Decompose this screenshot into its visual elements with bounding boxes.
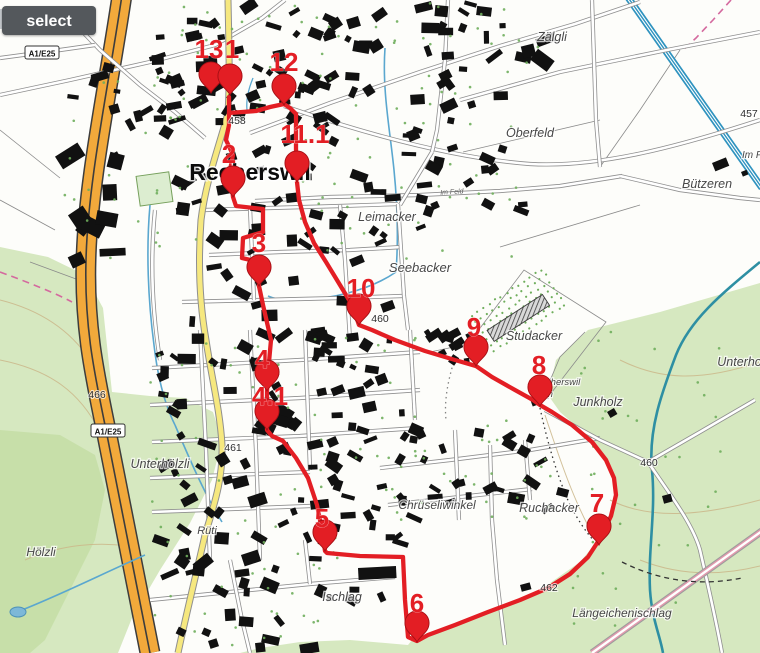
tree-dot [473,483,476,486]
field-label: Im F [742,150,760,161]
tree-dot [234,626,237,629]
tree-dot [318,567,321,570]
tree-dot [400,186,403,189]
building [332,412,343,418]
building [308,465,317,470]
tree-dot [327,156,330,159]
elevation-label: 458 [228,115,246,127]
tree-dot [604,410,607,413]
tree-dot [291,592,294,595]
building [476,6,492,17]
marker-number: 8 [532,350,546,380]
tree-dot [488,441,491,444]
tree-dot [396,20,399,23]
tree-dot [696,381,699,384]
tree-dot [719,450,722,453]
tree-dot [195,437,198,440]
tree-dot [231,644,234,647]
field-label: Junkholz [572,395,623,409]
field-label: Chrüseliwinkel [398,498,476,512]
tree-dot [363,232,366,235]
tree-dot [502,34,505,37]
building [225,608,236,621]
tree-dot [619,522,622,525]
tree-dot [413,339,416,342]
field-label: Bützeren [682,177,732,191]
tree-dot [653,348,656,351]
tree-dot [491,192,494,195]
building [99,248,125,257]
tree-dot [301,82,304,85]
tree-dot [490,472,493,475]
tree-dot [117,80,120,83]
tree-dot [454,92,457,95]
building [384,194,401,202]
tree-dot [251,572,254,575]
tree-dot [345,337,348,340]
tree-dot [156,192,159,195]
tree-dot [636,419,639,422]
tree-dot [168,71,171,74]
tree-dot [151,500,154,503]
tree-dot [424,450,427,453]
tree-dot [428,75,431,78]
tree-dot [276,612,279,615]
tree-dot [443,472,446,475]
building [192,333,204,343]
tree-dot [518,39,521,42]
tree-dot [389,382,392,385]
tree-dot [523,479,526,482]
tree-dot [486,425,489,428]
field-label: Ruchacker [519,501,580,515]
tree-dot [295,383,298,386]
tree-dot [490,42,493,45]
field-label: Leimacker [358,210,416,224]
tree-dot [614,624,617,627]
tree-dot [449,35,452,38]
tree-dot [346,206,349,209]
building [410,94,425,105]
building [177,354,195,364]
tree-dot [686,544,689,547]
tree-dot [477,192,480,195]
tree-dot [326,249,329,252]
tree-dot [69,157,72,160]
tree-dot [707,505,710,508]
tree-dot [181,364,184,367]
tree-dot [485,501,488,504]
tree-dot [469,86,472,89]
marker-number: 13 [195,34,224,64]
tree-dot [414,455,417,458]
tree-dot [429,2,432,5]
building [474,428,485,438]
tree-dot [703,394,706,397]
tree-dot [465,197,468,200]
building [220,230,238,240]
tree-dot [160,526,163,529]
tree-dot [200,99,203,102]
tree-dot [314,414,317,417]
building [441,51,454,60]
marker-number: 3 [252,228,266,258]
tree-dot [506,71,509,74]
tree-dot [590,473,593,476]
building [309,556,322,562]
tree-dot [316,16,319,19]
tree-dot [391,488,394,491]
tree-dot [602,572,605,575]
tree-dot [375,26,378,29]
tree-dot [525,517,528,520]
marker-number: 5 [315,503,329,533]
tree-dot [320,438,323,441]
tree-dot [329,77,332,80]
marker-number: 4.1 [252,381,288,411]
tree-dot [464,475,467,478]
tree-dot [678,456,681,459]
building [409,435,418,443]
tree-dot [257,17,260,20]
tree-dot [195,238,198,241]
tree-dot [593,473,596,476]
tree-dot [355,361,358,364]
building [358,566,397,580]
elevation-label: 466 [88,389,106,401]
building [243,588,250,597]
tree-dot [194,23,197,26]
tree-dot [300,21,303,24]
tree-dot [357,138,360,141]
tree-dot [615,587,618,590]
tree-dot [113,198,116,201]
tree-dot [149,381,152,384]
tree-dot [515,186,518,189]
tree-dot [525,61,528,64]
tree-dot [481,439,484,442]
building [287,234,298,246]
building [402,152,417,157]
tree-dot [259,99,262,102]
building [488,487,496,492]
tree-dot [437,139,440,142]
tree-dot [414,415,417,418]
tree-dot [229,364,232,367]
tree-dot [321,53,324,56]
tree-dot [340,242,343,245]
tree-dot [156,189,159,192]
tree-dot [144,132,147,135]
tree-dot [328,26,331,29]
field-label: Zälgli [536,30,568,44]
tree-dot [174,118,177,121]
map-canvas[interactable]: PfaffenackerZälgliOberfeldBützerenLeimac… [0,0,760,653]
building [499,23,505,28]
tree-dot [165,393,168,396]
building [329,219,344,230]
tree-dot [359,448,362,451]
tree-dot [496,173,499,176]
tree-dot [491,515,494,518]
building [156,34,165,40]
tree-dot [166,541,169,544]
elevation-label: 460 [640,457,658,469]
tree-dot [496,439,499,442]
tree-dot [181,34,184,37]
tree-dot [333,183,336,186]
building [346,332,359,342]
field-label: Rüti [197,525,217,537]
tree-dot [523,515,526,518]
tree-dot [718,347,721,350]
tree-dot [449,196,452,199]
marker-number: 11.1 [280,119,329,149]
tree-dot [294,488,297,491]
tree-dot [714,416,717,419]
building [348,422,356,431]
field-label: Unterholz [717,355,760,369]
tree-dot [73,198,76,201]
building [421,23,439,34]
tree-dot [179,187,182,190]
tree-dot [476,27,479,30]
tree-dot [535,464,538,467]
tree-dot [475,174,478,177]
building [154,115,167,122]
tree-dot [437,6,440,9]
marker-number: 1 [225,34,239,64]
tree-dot [102,81,105,84]
tree-dot [169,595,172,598]
field-label: Studacker [506,329,563,343]
tree-dot [160,439,163,442]
building [189,316,195,327]
tree-dot [414,450,417,453]
tree-dot [421,87,424,90]
building [493,91,508,100]
tree-dot [220,585,223,588]
tree-dot [297,552,300,555]
tree-dot [404,122,407,125]
tree-dot [109,257,112,260]
building [288,276,299,286]
tree-dot [610,331,613,334]
tree-dot [393,39,396,42]
tree-dot [86,219,89,222]
tree-dot [238,371,241,374]
tree-dot [317,620,320,623]
tree-dot [72,119,75,122]
tree-dot [178,116,181,119]
map-window: PfaffenackerZälgliOberfeldBützerenLeimac… [0,0,760,653]
tree-dot [440,91,443,94]
tree-dot [156,231,159,234]
building [298,497,304,503]
building [484,31,489,44]
tree-dot [177,474,180,477]
tree-dot [203,612,206,615]
field-label: Hölzli [26,545,56,559]
tree-dot [429,43,432,46]
tree-dot [351,196,354,199]
tree-dot [376,455,379,458]
tree-dot [540,465,543,468]
tree-dot [422,37,425,40]
building [447,117,455,125]
tree-dot [218,26,221,29]
tree-dot [508,198,511,201]
tree-dot [510,255,513,258]
tree-dot [319,469,322,472]
elevation-label: 461 [224,442,242,454]
tree-dot [438,185,441,188]
building [438,28,453,36]
tree-dot [381,417,384,420]
tree-dot [216,108,219,111]
marker-number: 10 [347,273,376,303]
building [102,184,117,201]
tree-dot [158,245,161,248]
tree-dot [329,152,332,155]
tree-dot [234,347,237,350]
sports-field [136,172,173,206]
tree-dot [505,419,508,422]
tree-dot [549,475,552,478]
tree-dot [154,614,157,617]
tree-dot [583,367,586,370]
field-label: Unterhölzli [130,457,190,471]
field-label: Längeichenischlag [572,606,672,620]
tree-dot [317,202,320,205]
tree-dot [601,417,604,420]
tree-dot [263,541,266,544]
tree-dot [210,364,213,367]
tree-dot [337,35,340,38]
building [434,5,448,17]
tree-dot [441,249,444,252]
elevation-label: 457 [740,108,758,120]
tree-dot [244,519,247,522]
tree-dot [449,480,452,483]
tree-dot [87,188,90,191]
building [363,182,374,193]
tree-dot [480,13,483,16]
building [239,616,254,627]
field-label: Oberfeld [506,126,555,140]
marker-number: 2 [222,139,236,169]
tree-dot [170,117,173,120]
marker-number: 4 [255,344,270,374]
tree-dot [155,241,158,244]
tree-dot [267,587,270,590]
tree-dot [245,53,248,56]
building [345,72,359,81]
tree-dot [186,555,189,558]
tree-dot [387,457,390,460]
building [215,118,223,125]
tree-dot [321,196,324,199]
tree-dot [181,29,184,32]
tree-dot [544,458,547,461]
road-badge-label: A1/E25 [29,50,56,59]
building [399,409,405,416]
building [322,342,337,348]
tree-dot [664,455,667,458]
tree-dot [422,122,425,125]
tree-dot [449,163,452,166]
road-badge-label: A1/E25 [95,428,122,437]
tree-dot [393,496,396,499]
building [518,201,528,207]
tree-dot [312,621,315,624]
field-label: Ischlag [322,590,362,604]
tree-dot [274,525,277,528]
tree-dot [577,575,580,578]
tree-dot [592,541,595,544]
tree-dot [355,456,358,459]
marker-number: 6 [410,588,424,618]
tree-dot [319,75,322,78]
tree-dot [279,493,282,496]
tree-dot [429,103,432,106]
tree-dot [279,635,282,638]
building [459,66,468,72]
tree-dot [469,123,472,126]
tree-dot [193,630,196,633]
elevation-label: 462 [540,582,558,594]
field-label: Seebacker [389,260,452,275]
tree-dot [377,344,380,347]
marker-number: 9 [467,312,481,342]
tree-dot [64,194,67,197]
marker-number: 12 [270,47,299,77]
tree-dot [395,107,398,110]
tree-dot [263,637,266,640]
tree-dot [516,496,519,499]
tree-dot [400,518,403,521]
pond [10,607,26,617]
tree-dot [137,220,140,223]
tree-dot [241,21,244,24]
select-button[interactable]: select [2,6,96,35]
tree-dot [417,221,420,224]
tree-dot [572,587,575,590]
tree-dot [573,622,576,625]
tree-dot [355,104,358,107]
tree-dot [108,174,111,177]
tree-dot [336,557,339,560]
tree-dot [423,457,426,460]
elevation-label: 460 [371,313,389,325]
building [255,642,266,653]
tree-dot [231,28,234,31]
tree-dot [349,227,352,230]
tree-dot [580,372,583,375]
tree-dot [634,504,637,507]
tree-dot [674,601,677,604]
building [481,165,489,174]
tree-dot [183,6,186,9]
tree-dot [237,532,240,535]
tree-dot [268,15,271,18]
tree-dot [270,610,273,613]
tree-dot [313,564,316,567]
tree-dot [303,614,306,617]
tree-dot [263,568,266,571]
marker-number: 7 [590,488,604,518]
tree-dot [383,349,386,352]
